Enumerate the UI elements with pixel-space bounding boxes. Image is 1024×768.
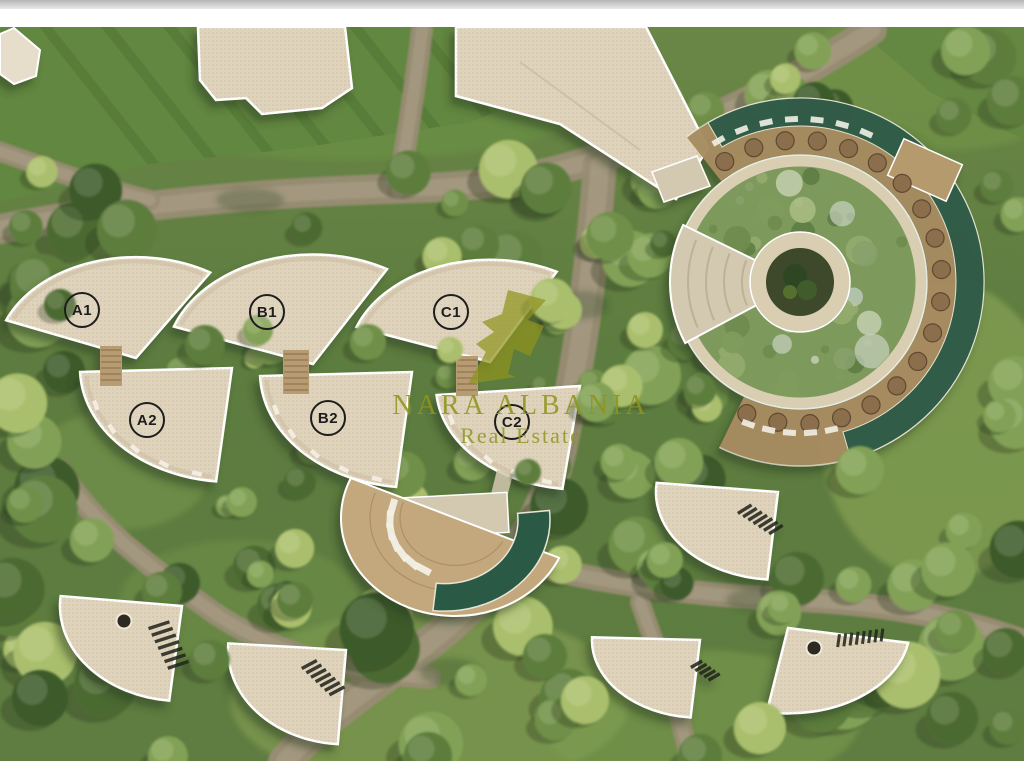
parasol-icon	[738, 405, 756, 423]
parasol-icon	[862, 396, 880, 414]
skylight-icon	[807, 641, 822, 656]
parasol-icon	[868, 154, 886, 172]
parasol-icon	[776, 132, 794, 150]
parasol-icon	[716, 153, 734, 171]
parasol-icon	[893, 174, 911, 192]
parasol-icon	[888, 377, 906, 395]
parasol-icon	[913, 200, 931, 218]
parasol-icon	[932, 293, 950, 311]
aerial-site-plan-render	[0, 27, 1024, 761]
skylight-icon	[117, 614, 132, 629]
unit-label-c1: C1	[433, 294, 469, 330]
parasol-icon	[808, 132, 826, 150]
parasol-icon	[932, 261, 950, 279]
parasol-icon	[840, 140, 858, 158]
scan-border-top-gray	[0, 0, 1024, 9]
site-plan-screenshot: A1 B1 C1 A2 B2 C2 NARA ALBANIA Real Esta…	[0, 0, 1024, 768]
unit-label-b2: B2	[310, 400, 346, 436]
unit-label-c2: C2	[494, 404, 530, 440]
unit-label-b1: B1	[249, 294, 285, 330]
unit-label-a2: A2	[129, 402, 165, 438]
scan-border-bottom-white	[0, 761, 1024, 768]
parasol-icon	[924, 324, 942, 342]
parasol-icon	[926, 229, 944, 247]
parasol-icon	[833, 409, 851, 427]
scan-border-top-white	[0, 9, 1024, 28]
unit-label-a1: A1	[64, 292, 100, 328]
parasol-icon	[745, 139, 763, 157]
parasol-icon	[909, 352, 927, 370]
